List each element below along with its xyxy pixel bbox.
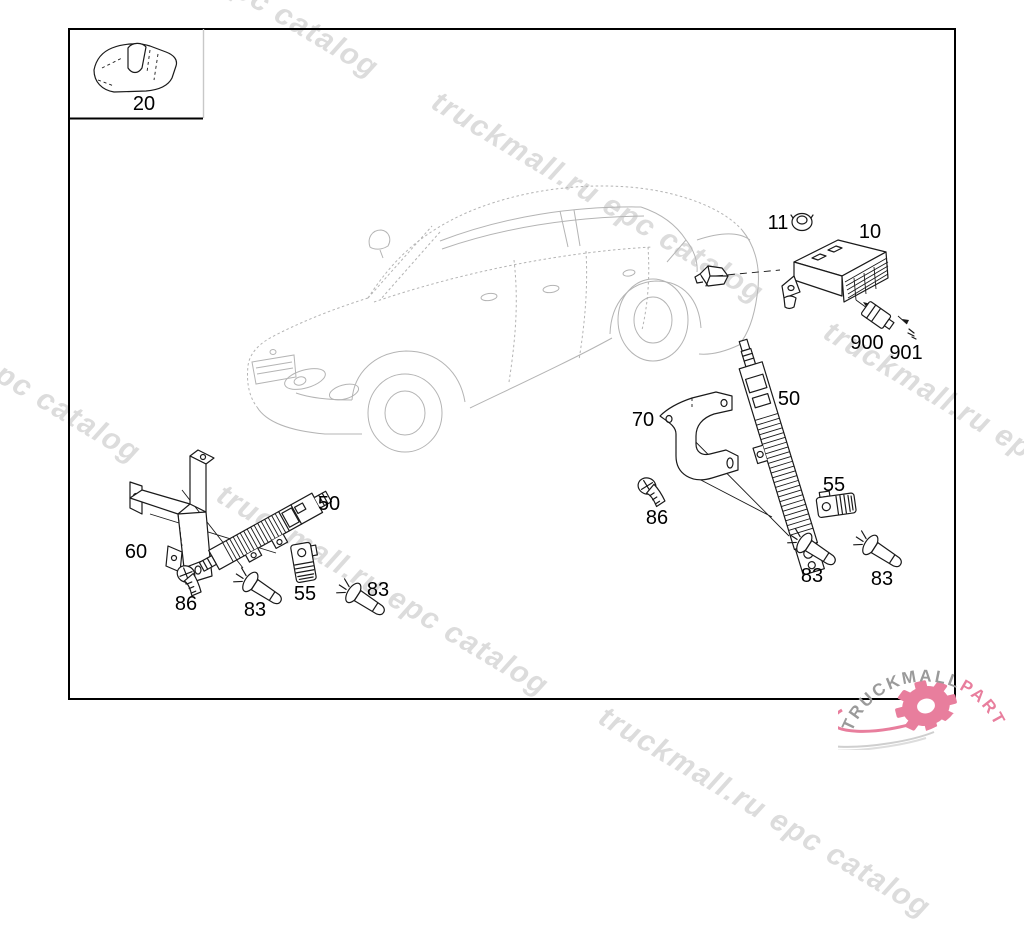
- part-label-901[interactable]: 901: [889, 342, 922, 364]
- part-label-55-right[interactable]: 55: [823, 474, 845, 496]
- part-86-screw-right-drawing: [633, 475, 670, 508]
- part-label-55-left[interactable]: 55: [294, 583, 316, 605]
- part-label-20[interactable]: 20: [133, 93, 155, 115]
- part-label-70[interactable]: 70: [632, 409, 654, 431]
- part-83-bolt-right-2-drawing: [851, 527, 907, 574]
- installed-module-drawing: [695, 266, 728, 286]
- part-901-pin-drawing: [898, 316, 916, 339]
- part-label-60[interactable]: 60: [125, 541, 147, 563]
- part-label-50-right[interactable]: 50: [778, 388, 800, 410]
- part-label-86-left[interactable]: 86: [175, 593, 197, 615]
- diagram-frame: [69, 29, 955, 699]
- part-label-83-left-2[interactable]: 83: [367, 579, 389, 601]
- truckmall-parts-logo: TRUCKMALLPARTS: [838, 630, 1024, 750]
- part-70-bracket-drawing: [660, 392, 738, 480]
- part-900-connector-drawing: [856, 300, 896, 332]
- part-20-clip-drawing: [94, 43, 177, 92]
- catalog-page: { "watermark": { "text": "truckmall.ru e…: [0, 0, 1024, 750]
- part-11-grommet-drawing: [791, 214, 813, 231]
- part-label-11[interactable]: 11: [768, 212, 789, 234]
- part-label-83-right-2[interactable]: 83: [871, 568, 893, 590]
- part-10-module-drawing: [782, 240, 888, 309]
- part-55-clip-left-drawing: [290, 541, 321, 583]
- part-label-900[interactable]: 900: [850, 332, 883, 354]
- part-label-50-left[interactable]: 50: [318, 493, 340, 515]
- part-label-10[interactable]: 10: [859, 221, 881, 243]
- part-label-83-right-1[interactable]: 83: [801, 565, 823, 587]
- part-label-86-right[interactable]: 86: [646, 507, 668, 529]
- part-label-83-left-1[interactable]: 83: [244, 599, 266, 621]
